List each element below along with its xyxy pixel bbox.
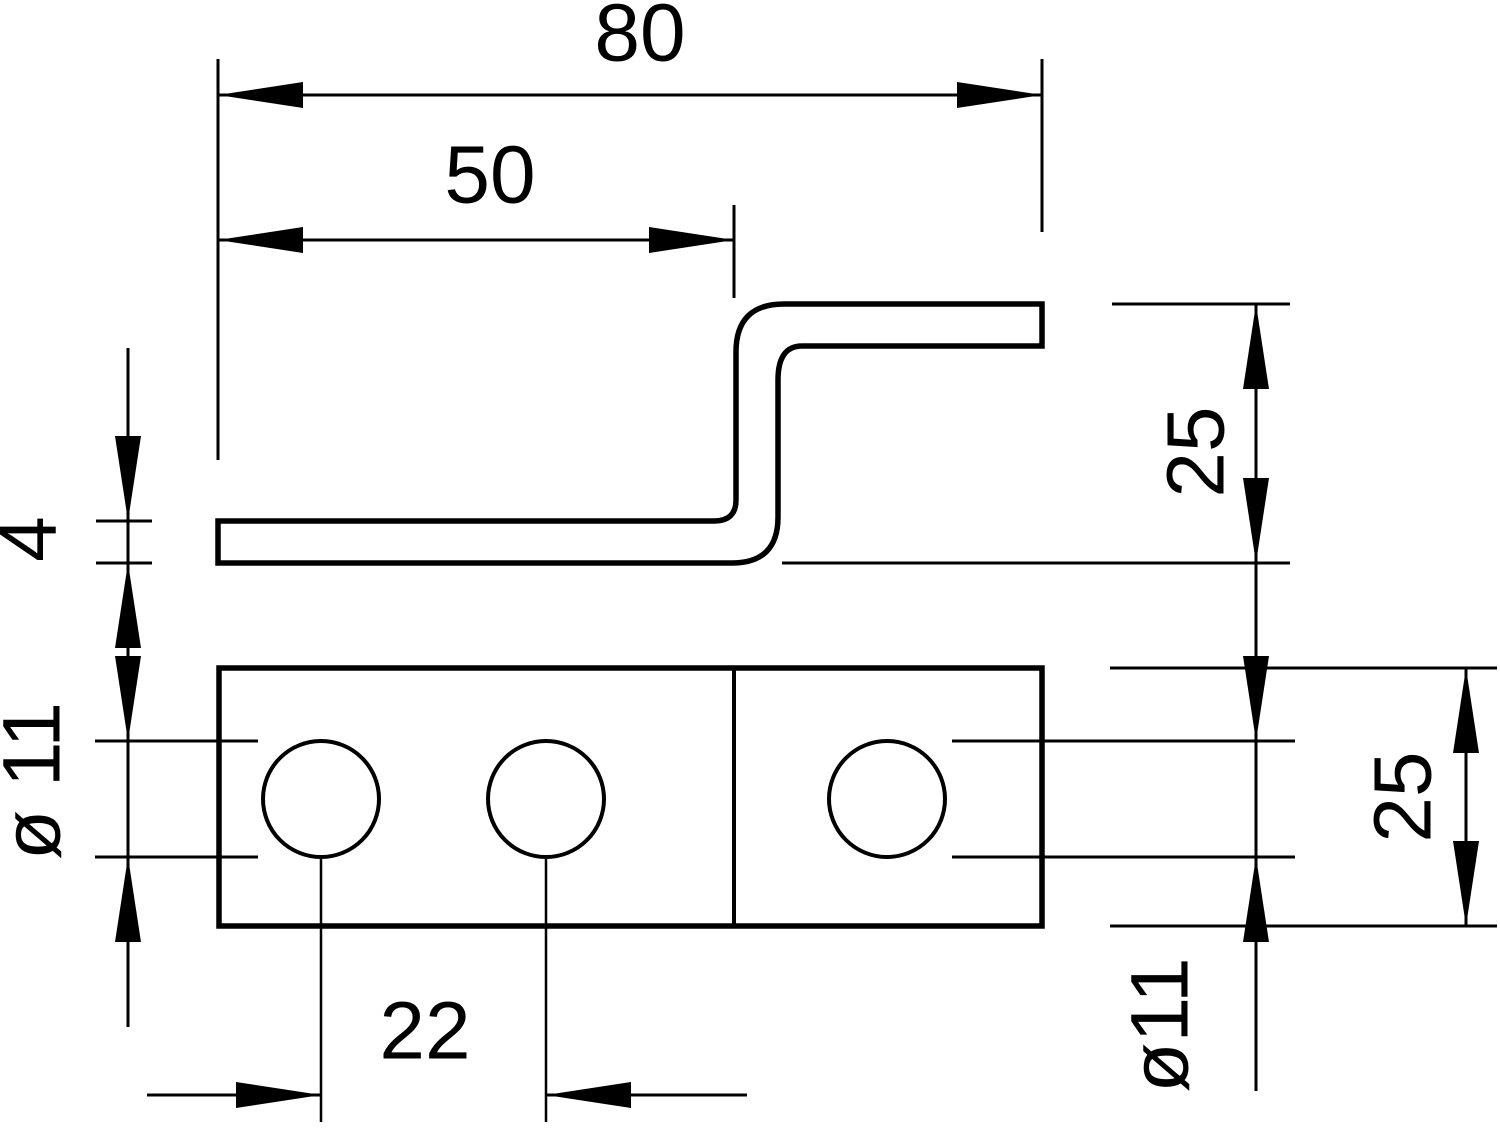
dim-label-25-width: 25: [1358, 751, 1449, 842]
arrowhead-bottom: [115, 857, 141, 942]
dim-hole-spacing: 22: [147, 986, 747, 1109]
arrowhead-top: [1243, 304, 1269, 389]
dim-label-80: 80: [594, 0, 685, 79]
arrowhead-left: [218, 227, 303, 253]
arrowhead-right: [649, 227, 734, 253]
dim-overall-length: 80: [218, 0, 1042, 460]
arrowhead-top: [1453, 668, 1479, 753]
dim-profile-height: 25: [782, 304, 1290, 1091]
dim-plate-width: 25: [1110, 668, 1497, 926]
dim-label-50: 50: [444, 130, 535, 221]
arrowhead-right: [546, 1082, 631, 1108]
arrowhead-bottom: [115, 563, 141, 648]
plan-outline: [219, 668, 1042, 926]
arrowhead-left: [218, 82, 303, 108]
dim-hole-diameter-right: ø11: [952, 656, 1295, 1093]
dim-label-dia11-left: ø 11: [0, 702, 78, 860]
arrowhead-bottom: [1243, 478, 1269, 563]
dim-label-25-height: 25: [1151, 406, 1242, 497]
technical-drawing-canvas: 80 50 25 4 ø 11 22: [0, 0, 1500, 1130]
dim-label-dia11-right: ø11: [1115, 957, 1206, 1092]
technical-drawing-page: 80 50 25 4 ø 11 22: [0, 0, 1500, 1130]
hole-right: [829, 741, 945, 857]
plan-view: [219, 668, 1042, 1122]
arrowhead-left: [236, 1082, 321, 1108]
dim-flange-length: 50: [218, 130, 734, 299]
z-profile-outline: [218, 304, 1042, 563]
arrowhead-top: [115, 656, 141, 741]
dim-label-4: 4: [0, 516, 74, 562]
hole-left: [263, 741, 379, 857]
arrowhead-right: [957, 82, 1042, 108]
arrowhead-bottom: [1453, 841, 1479, 926]
arrowhead-top: [115, 436, 141, 521]
hole-middle: [488, 741, 604, 857]
arrowhead-bottom: [1243, 857, 1269, 942]
side-view: [218, 304, 1042, 563]
dim-label-22: 22: [379, 986, 470, 1077]
